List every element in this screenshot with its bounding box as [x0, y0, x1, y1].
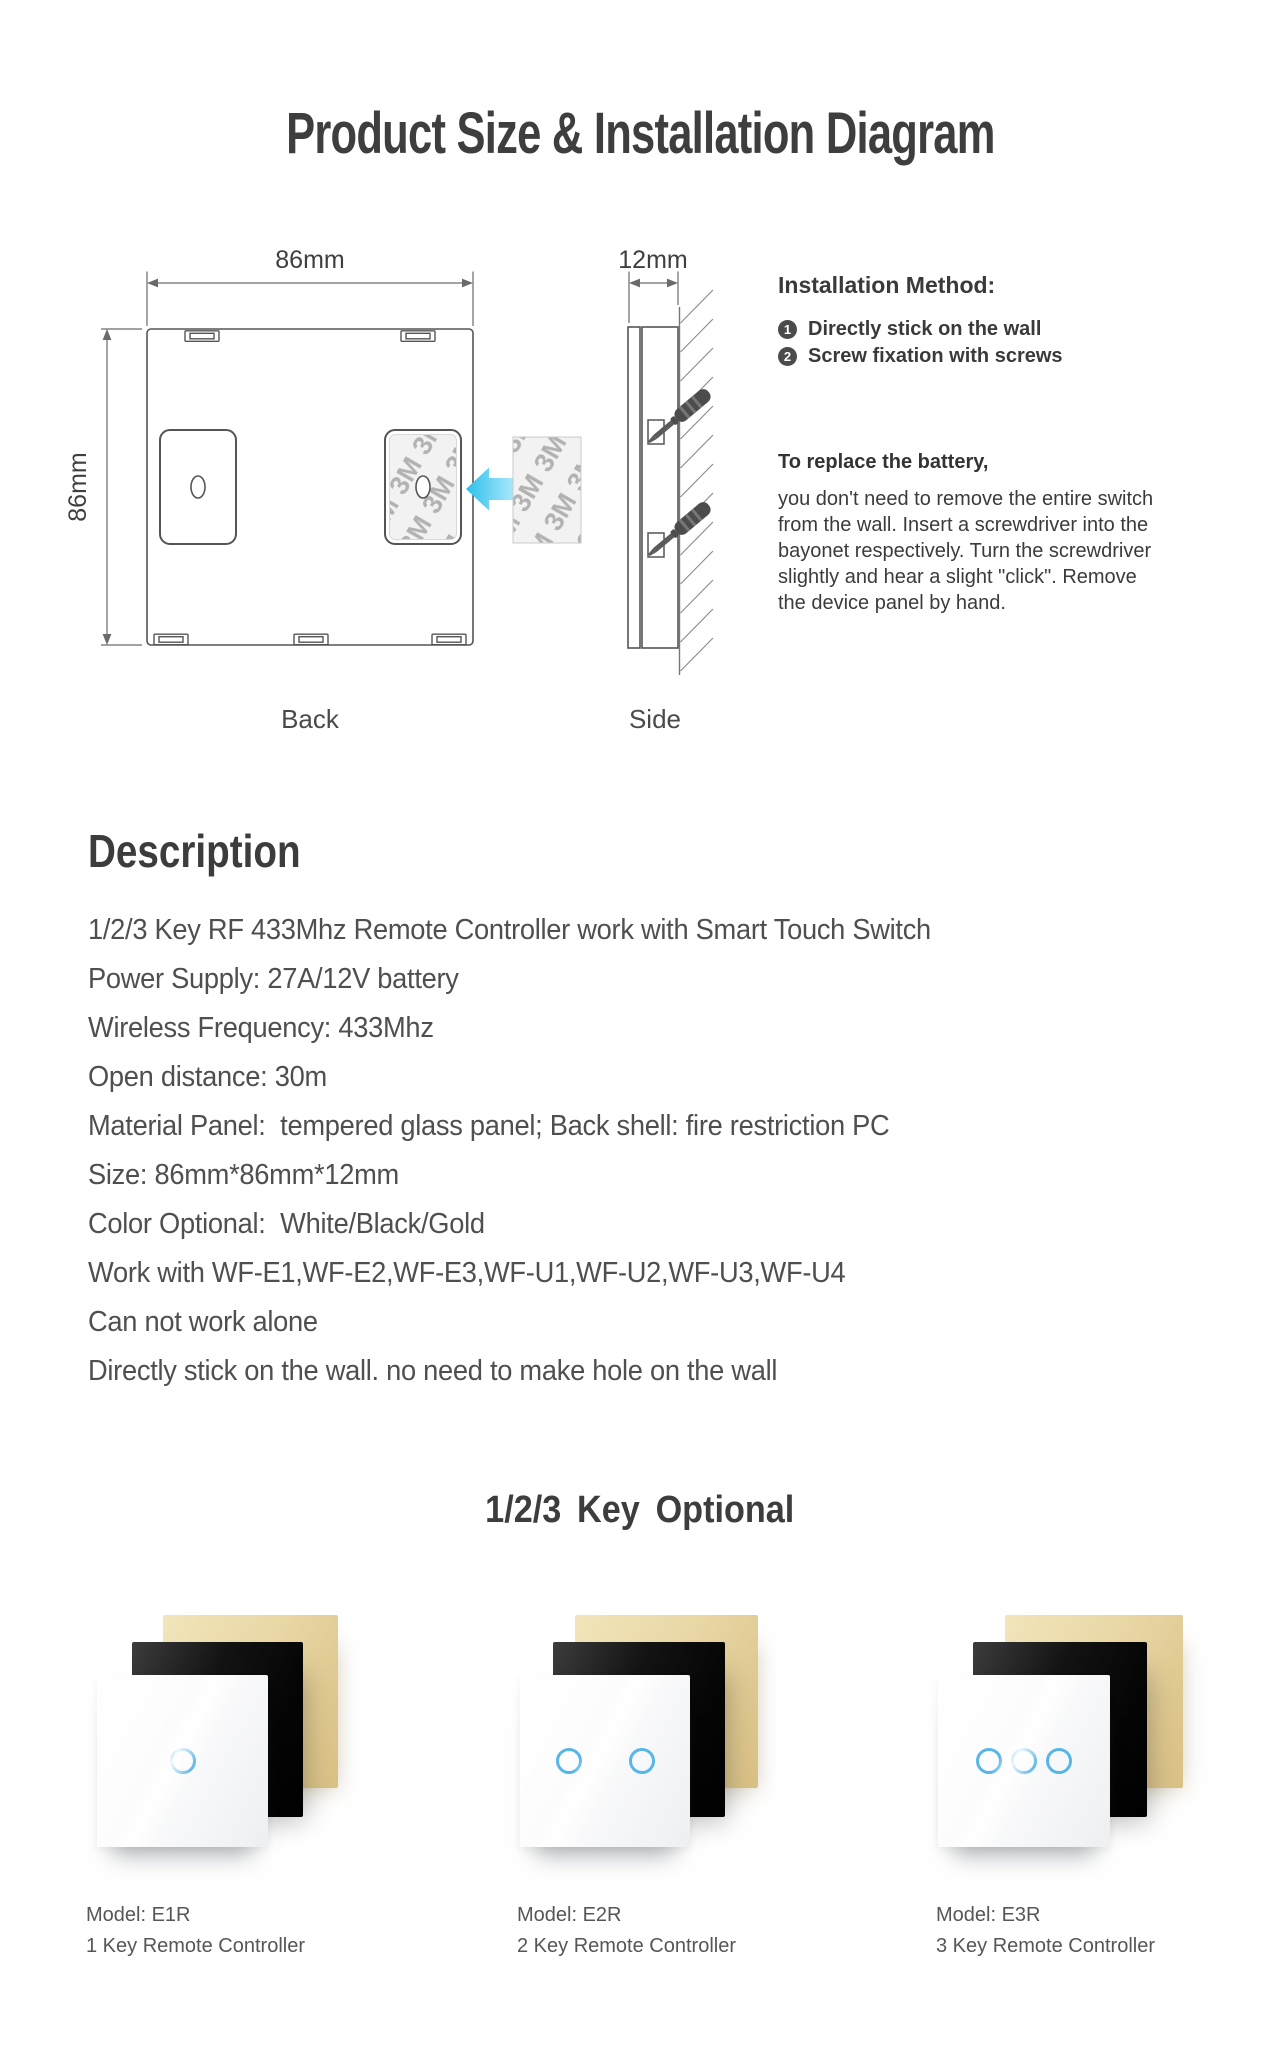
spec-line: Size: 86mm*86mm*12mm [88, 1151, 1122, 1200]
side-width-label: 12mm [618, 246, 687, 274]
battery-compartment-left [160, 430, 236, 544]
installation-method-section: Installation Method: 1 Directly stick on… [778, 272, 1248, 370]
back-view-diagram [147, 329, 473, 645]
product-name: 2 Key Remote Controller [517, 1931, 837, 1962]
back-height-dimension [101, 329, 142, 645]
side-width-dimension [629, 272, 678, 324]
installation-method-heading: Installation Method: [778, 272, 1248, 299]
battery-text-line: from the wall. Insert a screwdriver into… [778, 512, 1258, 538]
touch-ring-icon [1046, 1748, 1072, 1774]
battery-text-line: slightly and hear a slight "click". Remo… [778, 564, 1258, 590]
e3r-white-panel [938, 1675, 1110, 1847]
touch-rings [97, 1675, 268, 1847]
touch-rings [520, 1675, 690, 1847]
spec-line: Power Supply: 27A/12V battery [88, 955, 1122, 1004]
side-view-caption: Side [629, 704, 681, 734]
battery-text-line: you don't need to remove the entire swit… [778, 486, 1258, 512]
side-view-diagram [628, 327, 678, 648]
product-model: Model: E2R [517, 1900, 837, 1931]
step-2-text: Screw fixation with screws [808, 343, 1063, 370]
spec-line: Wireless Frequency: 433Mhz [88, 1004, 1122, 1053]
battery-text-line: bayonet respectively. Turn the screwdriv… [778, 538, 1258, 564]
installation-step-2: 2 Screw fixation with screws [778, 343, 1248, 370]
installation-diagram: 3M [0, 0, 780, 760]
spec-line: Open distance: 30m [88, 1053, 1122, 1102]
spec-line: Directly stick on the wall. no need to m… [88, 1347, 1122, 1396]
product-label-e1r: Model: E1R 1 Key Remote Controller [86, 1900, 406, 1962]
battery-text-line: the device panel by hand. [778, 590, 1258, 616]
product-model: Model: E1R [86, 1900, 406, 1931]
product-label-e3r: Model: E3R 3 Key Remote Controller [936, 1900, 1256, 1962]
description-spec-list: 1/2/3 Key RF 433Mhz Remote Controller wo… [88, 906, 1188, 1396]
wall-hatching [680, 290, 714, 675]
product-name: 1 Key Remote Controller [86, 1931, 406, 1962]
spec-line: Material Panel: tempered glass panel; Ba… [88, 1102, 1122, 1151]
installation-step-1: 1 Directly stick on the wall [778, 316, 1248, 343]
touch-ring-icon [629, 1748, 655, 1774]
product-model: Model: E3R [936, 1900, 1256, 1931]
touch-ring-icon [556, 1748, 582, 1774]
battery-replacement-section: To replace the battery, you don't need t… [778, 449, 1258, 616]
back-width-dimension [147, 272, 473, 327]
battery-heading: To replace the battery, [778, 449, 1258, 475]
spec-line: Color Optional: White/Black/Gold [88, 1200, 1122, 1249]
touch-ring-icon [170, 1748, 196, 1774]
back-width-label: 86mm [275, 246, 344, 274]
touch-rings [938, 1675, 1110, 1847]
e1r-white-panel [97, 1675, 268, 1847]
spec-line: 1/2/3 Key RF 433Mhz Remote Controller wo… [88, 906, 1122, 955]
step-1-number-icon: 1 [778, 320, 797, 339]
spec-line: Work with WF-E1,WF-E2,WF-E3,WF-U1,WF-U2,… [88, 1249, 1122, 1298]
step-1-text: Directly stick on the wall [808, 316, 1041, 343]
product-name: 3 Key Remote Controller [936, 1931, 1256, 1962]
key-options-header: 1/2/3 Key Optional [0, 1489, 1280, 1532]
product-label-e2r: Model: E2R 2 Key Remote Controller [517, 1900, 837, 1962]
battery-compartment-right [385, 430, 461, 544]
description-section-header: Description [88, 824, 341, 878]
back-height-label: 86mm [64, 452, 92, 521]
touch-ring-icon [976, 1748, 1002, 1774]
back-view-caption: Back [281, 704, 340, 734]
key-options-heading: 1/2/3 Key Optional [485, 1489, 794, 1532]
e2r-white-panel [520, 1675, 690, 1847]
description-heading: Description [88, 824, 301, 878]
3m-sticker [513, 437, 581, 543]
touch-ring-icon [1011, 1748, 1037, 1774]
step-2-number-icon: 2 [778, 347, 797, 366]
spec-line: Can not work alone [88, 1298, 1122, 1347]
